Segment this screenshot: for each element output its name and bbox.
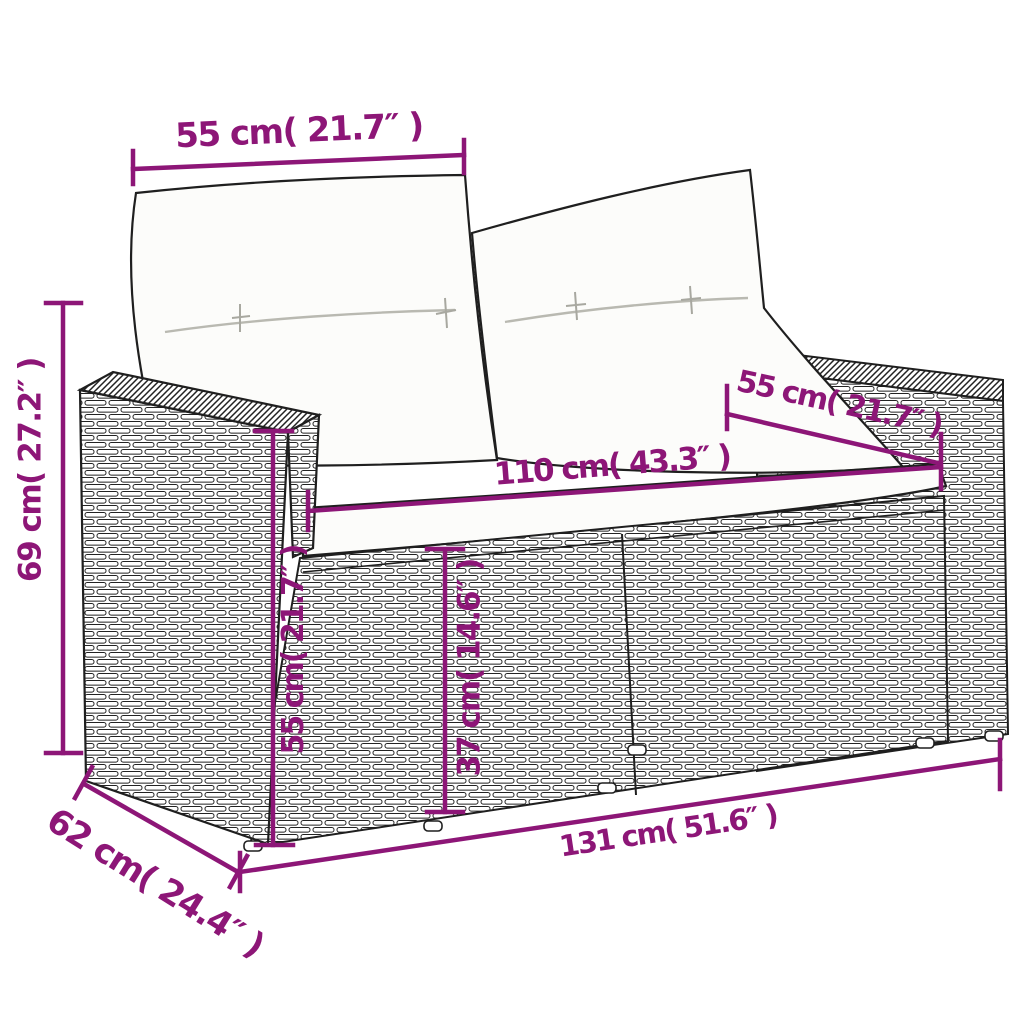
right-back-cushion: [472, 170, 903, 473]
dimension-label-armrest-height: 55 cm( 21.7″ ): [279, 546, 309, 755]
left-armrest-inner-face: [288, 415, 319, 557]
dim-line-overall-height: [46, 303, 81, 753]
dimension-label-back-width: 55 cm( 21.7″ ): [175, 109, 424, 154]
dimension-diagram: 55 cm( 21.7″ ) 69 cm( 27.2″ ) 110 cm( 43…: [0, 0, 1024, 1024]
left-armrest-front-face: [80, 390, 288, 844]
dimension-label-seat-height: 37 cm( 14.6″ ): [455, 560, 486, 777]
dimension-label-overall-height: 69 cm( 27.2″ ): [16, 358, 47, 582]
